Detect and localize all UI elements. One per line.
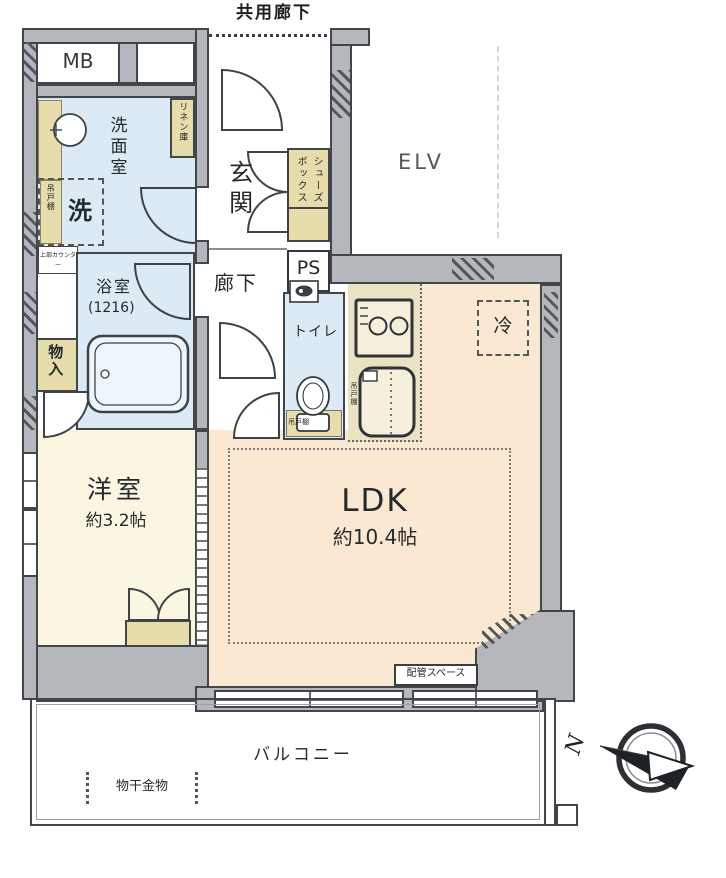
door-arc-hallway-ldk xyxy=(220,323,275,378)
label-common-corridor: 共用廊下 xyxy=(214,4,334,24)
stove-icon xyxy=(356,300,412,356)
door-arc-closet-right xyxy=(158,589,189,620)
door-arc-entrance xyxy=(222,70,282,130)
label-toilet: トイレ xyxy=(293,324,338,340)
label-bathroom: 浴室 xyxy=(96,278,132,296)
label-entrance: 玄関 xyxy=(224,160,252,220)
label-ldk-size: 約10.4帖 xyxy=(295,526,455,549)
label-toilet-cupboard: 吊戸棚 xyxy=(288,418,309,426)
label-kitchen-cupboard: 吊戸棚 xyxy=(350,382,358,406)
washbasin-icon xyxy=(50,114,86,146)
door-arc-shoebox-upper xyxy=(248,152,288,192)
label-elevator: ELV xyxy=(398,150,444,174)
label-western-room-size: 約3.2帖 xyxy=(55,512,177,532)
door-arc-storage xyxy=(44,392,89,437)
bathtub-icon xyxy=(88,336,188,412)
label-upper-counter: 上部カウンター xyxy=(39,251,77,270)
label-laundry-hardware: 物干金物 xyxy=(86,780,198,795)
label-washroom: 洗面室 xyxy=(106,116,126,179)
label-shoe-box: シューズボックス xyxy=(292,156,324,214)
label-western-room: 洋室 xyxy=(55,476,177,505)
label-washer-cupboard: 吊戸棚 xyxy=(46,184,55,211)
label-linen-closet: リネン庫 xyxy=(177,102,187,142)
label-ps: PS xyxy=(287,258,330,280)
door-arc-bathroom xyxy=(135,264,190,319)
compass-icon xyxy=(600,726,692,790)
door-arc-toilet xyxy=(234,393,279,438)
label-mb: MB xyxy=(38,50,118,73)
door-arc-closet-left xyxy=(129,589,160,620)
label-bathroom-size: (1216) xyxy=(88,300,135,316)
label-piping-space: 配管スペース xyxy=(394,668,478,680)
door-arc-washroom xyxy=(141,188,196,243)
door-arc-shoebox-lower xyxy=(248,192,288,232)
label-balcony: バルコニー xyxy=(228,746,378,766)
floor-plan: 共用廊下 MB 洗面室 リネン庫 吊戸棚 洗 上部カウンター 玄関 シューズボッ… xyxy=(0,0,726,878)
kitchen-sink-icon xyxy=(360,366,414,438)
label-ldk: LDK xyxy=(295,484,455,520)
label-fridge: 冷 xyxy=(477,316,529,338)
toilet-vent-icon xyxy=(290,281,318,302)
label-washer: 洗 xyxy=(68,198,92,226)
label-storage: 物入 xyxy=(46,344,63,378)
label-hallway: 廊下 xyxy=(214,272,258,295)
